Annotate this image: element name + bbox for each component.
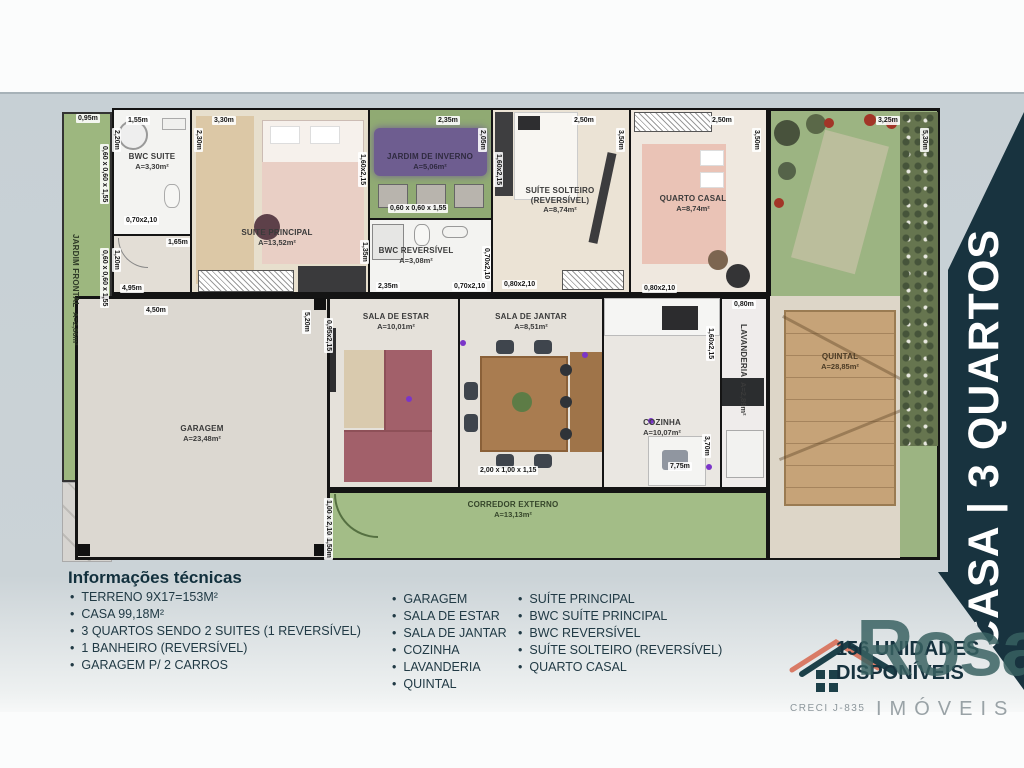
dim-label: 1,55m — [126, 116, 150, 125]
desk-graphic — [196, 116, 254, 284]
room-name: CORREDOR EXTERNO — [438, 500, 588, 510]
pillow-graphic — [518, 116, 540, 130]
dim-label: 0,95m — [76, 114, 100, 123]
light-dot-graphic — [460, 340, 466, 346]
dim-label: 2,30m — [194, 128, 203, 152]
floor-plan: JARDIM FRONTAL A=2,86m² BWC SUITE A=3,30… — [62, 100, 940, 565]
dim-label: 2,20m — [112, 128, 121, 152]
room-name: GARAGEM — [138, 424, 266, 434]
label-cozinha: COZINHA A=10,07m² — [610, 418, 714, 437]
brand-name: Rosa — [856, 602, 1024, 694]
room-area: A=13,13m² — [438, 510, 588, 520]
light-dot-graphic — [406, 396, 412, 402]
label-quarto-casal: QUARTO CASAL A=8,74m² — [632, 194, 754, 213]
tree-graphic — [778, 162, 796, 180]
label-bwc-suite: BWC SUITE A=3,30m² — [116, 152, 188, 171]
room-name: LAVANDERIA — [739, 324, 749, 377]
room-area: A=8,74m² — [496, 205, 624, 215]
room-name: BWC REVERSÍVEL — [370, 246, 462, 256]
dim-label: 1,00 x 2,10 — [324, 498, 333, 537]
sofa-graphic — [344, 430, 432, 482]
dim-label: 2,05m — [478, 128, 487, 152]
stool-graphic — [560, 428, 572, 440]
pouf-graphic — [726, 264, 750, 288]
sink-graphic — [442, 226, 468, 238]
column-graphic — [78, 544, 90, 556]
dim-label: 7,75m — [668, 462, 692, 471]
rug-graphic — [344, 350, 386, 428]
dim-label: 0,80m — [732, 300, 756, 309]
dim-label: 2,50m — [572, 116, 596, 125]
info-item: SALA DE JANTAR — [392, 625, 507, 642]
planter-graphic — [454, 184, 484, 208]
tree-graphic — [774, 120, 800, 146]
dim-label: 2,00 x 1,00 x 1,15 — [478, 466, 538, 475]
dim-label: 0,70x2,10 — [482, 246, 491, 281]
dim-label: 1,65m — [166, 238, 190, 247]
room-name: SUITE PRINCIPAL — [202, 228, 352, 238]
dim-label: 5,20m — [302, 310, 311, 334]
column-graphic — [314, 298, 326, 310]
info-item: 3 QUARTOS SENDO 2 SUITES (1 REVERSÍVEL) — [70, 623, 361, 640]
pillow-graphic — [700, 150, 724, 166]
dim-label: 1,60x2,15 — [358, 152, 367, 187]
dim-label: 0,60 x 0,60 x 1,55 — [388, 204, 448, 213]
label-suite-solteiro: SUÍTE SOLTEIRO (REVERSÍVEL) A=8,74m² — [496, 186, 624, 215]
dim-label: 2,35m — [436, 116, 460, 125]
room-area: A=10,01m² — [340, 322, 452, 332]
room-area: A=8,51m² — [458, 322, 604, 332]
label-sala-de-jantar: SALA DE JANTAR A=8,51m² — [458, 312, 604, 331]
label-corredor-externo: CORREDOR EXTERNO A=13,13m² — [438, 500, 588, 519]
dim-label: 4,50m — [144, 306, 168, 315]
info-item: QUINTAL — [392, 676, 507, 693]
window-graphic — [198, 270, 294, 292]
info-item: GARAGEM — [392, 591, 507, 608]
pillow-graphic — [700, 172, 724, 188]
room-area: A=3,30m² — [116, 162, 188, 172]
info-item: BWC SUÍTE PRINCIPAL — [518, 608, 722, 625]
label-garagem: GARAGEM A=23,48m² — [138, 424, 266, 443]
chair-graphic — [534, 340, 552, 354]
room-name: QUARTO CASAL — [632, 194, 754, 204]
dim-label: 0,80x2,10 — [502, 280, 537, 289]
tech-info-heading: Informações técnicas — [68, 568, 242, 588]
info-item: GARAGEM P/ 2 CARROS — [70, 657, 361, 674]
light-dot-graphic — [582, 352, 588, 358]
room-area: A=5,06m² — [374, 162, 486, 172]
pouf-graphic — [708, 250, 728, 270]
dim-label: 2,35m — [376, 282, 400, 291]
room-name: SALA DE ESTAR — [340, 312, 452, 322]
dim-label: 1,20m — [112, 248, 121, 272]
label-bwc-reversivel: BWC REVERSÍVEL A=3,08m² — [370, 246, 462, 265]
toilet-graphic — [414, 224, 430, 246]
dim-label: 0,60 x 0,60 x 1,55 — [100, 144, 109, 204]
dim-label: 1,60x2,15 — [494, 152, 503, 187]
laundry-tank-graphic — [726, 430, 764, 478]
room-area: A=13,52m² — [202, 238, 352, 248]
label-jardim-frontal: JARDIM FRONTAL A=2,86m² — [66, 190, 84, 390]
dim-label: 4,95m — [120, 284, 144, 293]
flower-graphic — [774, 198, 784, 208]
room-name: SALA DE JANTAR — [458, 312, 604, 322]
label-sala-de-estar: SALA DE ESTAR A=10,01m² — [340, 312, 452, 331]
label-quintal: QUINTAL A=28,85m² — [786, 352, 894, 371]
info-item: SUÍTE PRINCIPAL — [518, 591, 722, 608]
dim-label: 0,70x2,10 — [124, 216, 159, 225]
creci-registration: CRECI J-835 — [790, 703, 865, 714]
label-lavanderia: LAVANDERIA A=2,89m² — [734, 310, 752, 430]
dim-label: 3,25m — [876, 116, 900, 125]
dim-label: 0,80x2,10 — [642, 284, 677, 293]
window-graphic — [634, 112, 712, 132]
dim-label: 1,35m — [360, 240, 369, 264]
room-name: JARDIM DE INVERNO — [374, 152, 486, 162]
room-name: BWC SUITE — [116, 152, 188, 162]
shrub-strip-graphic — [900, 112, 938, 446]
info-item: SUÍTE SOLTEIRO (REVERSÍVEL) — [518, 642, 722, 659]
room-area: A=8,74m² — [632, 204, 754, 214]
stool-graphic — [560, 396, 572, 408]
room-name: SUÍTE SOLTEIRO (REVERSÍVEL) — [496, 186, 624, 205]
dim-label: 0,95x2,15 — [324, 318, 333, 353]
room-name: JARDIM FRONTAL — [71, 234, 81, 307]
stool-graphic — [560, 364, 572, 376]
chair-graphic — [464, 382, 478, 400]
room-area: A=3,08m² — [370, 256, 462, 266]
info-item: 1 BANHEIRO (REVERSÍVEL) — [70, 640, 361, 657]
cooktop-graphic — [662, 306, 698, 330]
label-jardim-de-inverno: JARDIM DE INVERNO A=5,06m² — [374, 152, 486, 171]
wood-deck-graphic — [784, 310, 896, 506]
rooms-list-2: SUÍTE PRINCIPALBWC SUÍTE PRINCIPALBWC RE… — [518, 591, 722, 676]
dim-label: 1,60x2,15 — [706, 326, 715, 361]
sink-graphic — [162, 118, 186, 130]
window-graphic — [562, 270, 624, 290]
dim-label: 3,50m — [616, 128, 625, 152]
plant-graphic — [512, 392, 532, 412]
brand-subtitle: IMÓVEIS — [876, 698, 1015, 721]
dim-label: 0,70x2,10 — [452, 282, 487, 291]
wall — [328, 487, 768, 493]
dim-label: 0,60 x 0,60 x 1,55 — [100, 248, 109, 308]
room-area: A=23,48m² — [138, 434, 266, 444]
room-area: A=28,85m² — [786, 362, 894, 372]
rooms-list-1: GARAGEMSALA DE ESTARSALA DE JANTARCOZINH… — [392, 591, 507, 693]
label-suite-principal: SUITE PRINCIPAL A=13,52m² — [202, 228, 352, 247]
info-item: TERRENO 9X17=153M² — [70, 589, 361, 606]
tech-info-list-1: TERRENO 9X17=153M²CASA 99,18M²3 QUARTOS … — [70, 589, 361, 674]
light-dot-graphic — [706, 464, 712, 470]
chair-graphic — [464, 414, 478, 432]
dim-label: 1,50m — [324, 536, 333, 560]
counter-graphic — [570, 352, 602, 452]
toilet-graphic — [164, 184, 180, 208]
room-area: A=2,89m² — [739, 382, 749, 416]
dim-label: 5,30m — [920, 128, 929, 152]
room-area: A=2,86m² — [71, 312, 81, 346]
flower-graphic — [864, 114, 876, 126]
tree-graphic — [806, 114, 826, 134]
room-area: A=10,07m² — [610, 428, 714, 438]
dim-label: 3,70m — [702, 434, 711, 458]
flower-graphic — [824, 118, 834, 128]
info-item: SALA DE ESTAR — [392, 608, 507, 625]
info-item: CASA 99,18M² — [70, 606, 361, 623]
room-name: QUINTAL — [786, 352, 894, 362]
wardrobe-graphic — [298, 266, 366, 292]
dim-label: 3,30m — [212, 116, 236, 125]
pillow-graphic — [310, 126, 340, 144]
chair-graphic — [496, 340, 514, 354]
info-item: LAVANDERIA — [392, 659, 507, 676]
dim-label: 2,50m — [710, 116, 734, 125]
info-item: BWC REVERSÍVEL — [518, 625, 722, 642]
info-item: COZINHA — [392, 642, 507, 659]
pillow-graphic — [270, 126, 300, 144]
info-item: QUARTO CASAL — [518, 659, 722, 676]
dim-label: 3,50m — [752, 128, 761, 152]
room-name: COZINHA — [610, 418, 714, 428]
blanket-graphic — [262, 162, 364, 264]
